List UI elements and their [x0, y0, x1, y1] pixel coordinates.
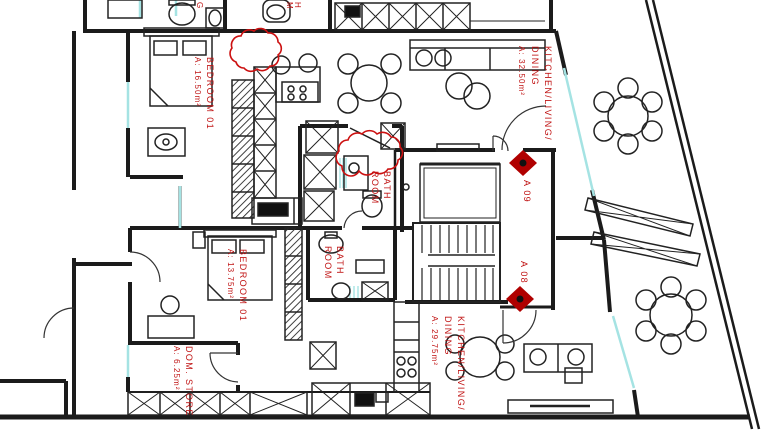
floor-plan-screenshot: BEDROOM 01 A: 16.50m² KITCHEN/LIVING/ DI…: [0, 0, 763, 430]
label-bedroom-a09: BEDROOM 01: [205, 57, 215, 130]
area-bedroom-a08: A: 13.75m²: [226, 249, 235, 299]
label-bath-a08-1: BATH: [335, 246, 345, 275]
wardrobe-a08: [285, 228, 302, 340]
label-kitchen-a09-1: KITCHEN/LIVING/: [543, 46, 553, 141]
cutoff-label-fragment-2: M: [285, 2, 294, 9]
label-dom-store: DOM. STORE: [184, 346, 194, 417]
wardrobe-a09: [232, 80, 254, 218]
area-dom-store: A: 6.25m²: [172, 346, 181, 391]
label-kitchen-a08-2: DINING: [443, 316, 453, 356]
area-bedroom-a09: A: 16.50m²: [193, 57, 202, 107]
floor-plan-drawing: BEDROOM 01 A: 16.50m² KITCHEN/LIVING/ DI…: [0, 0, 763, 430]
label-unit-a08: A 08: [519, 261, 529, 284]
label-unit-a09: A 09: [522, 180, 532, 203]
area-kitchen-a08: A: 29.75m²: [430, 316, 439, 366]
label-kitchen-a09-2: DINING: [530, 46, 540, 86]
cutoff-label-fragment-3: H: [293, 2, 302, 8]
label-bath-a09-1: BATH: [382, 171, 392, 200]
area-kitchen-a09: A: 32.50m²: [517, 46, 526, 96]
label-kitchen-a08-1: KITCHEN/LIVING/: [456, 316, 466, 411]
label-bath-a08-2: ROOM: [323, 246, 333, 280]
label-bath-a09-2: ROOM: [370, 171, 380, 205]
cutoff-label-fragment-1: G: [195, 2, 204, 8]
label-bedroom-a08: BEDROOM 01: [238, 249, 248, 322]
